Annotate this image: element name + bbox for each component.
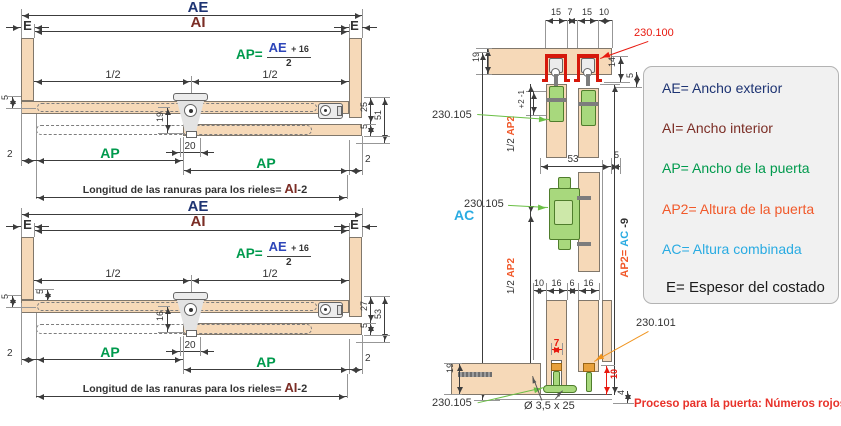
formula-denominator: 2 xyxy=(286,58,292,69)
ext-line xyxy=(180,138,181,157)
dim-7-red-line xyxy=(551,349,562,350)
ext-line xyxy=(158,107,170,108)
formula-ae: AE xyxy=(269,40,287,55)
legend-label: Ancho exterior xyxy=(692,80,782,96)
ext-line xyxy=(362,335,363,374)
slot-length-dim-line xyxy=(36,396,347,397)
rail-channel-foot xyxy=(565,79,570,82)
e-arrow-stub xyxy=(362,27,377,28)
ap-dim-line-right xyxy=(183,170,349,171)
rail-channel-foot xyxy=(542,79,547,82)
plan-view-1: AE E E AI AP= AE + 16 2 1/2 1/2 5 2 19 xyxy=(0,0,430,199)
hanger-screw xyxy=(546,98,566,102)
ext-line xyxy=(6,96,21,97)
ap2-formula-lhs: AP2= xyxy=(619,250,631,278)
half-dim-line xyxy=(34,81,191,82)
half-dim-label: 1/2 xyxy=(98,268,128,280)
ext-line xyxy=(362,136,363,175)
legend-label: Altura combinada xyxy=(693,241,802,257)
ext-line xyxy=(349,223,350,237)
ext-line xyxy=(600,84,620,85)
legend-item-e: E= Espesor del costado xyxy=(666,279,825,297)
dim-5-line xyxy=(611,166,620,167)
ac-dim-line xyxy=(482,52,483,400)
guide-anchor-front xyxy=(551,363,562,371)
ext-line xyxy=(349,24,350,38)
half-ap2-label: 1/2 AP2 xyxy=(507,258,517,294)
dim-20-stub xyxy=(200,351,214,352)
ext-line xyxy=(36,313,37,398)
door-width-formula: AP= AE + 16 2 xyxy=(236,239,311,268)
ext-line xyxy=(601,365,615,366)
ap-dim-line-left xyxy=(36,160,183,161)
dim-line xyxy=(545,20,567,21)
dim-right-total-label: 51 xyxy=(374,110,383,120)
tolerance-label: +2 -1 xyxy=(518,90,526,108)
ai-width-label: AI xyxy=(180,15,216,32)
ext-line xyxy=(562,343,563,355)
legend-item-ai: AI= Ancho interior xyxy=(662,119,773,137)
slot-length-suffix: -2 xyxy=(297,383,307,395)
floor-line xyxy=(541,394,612,395)
legend-code: AE= xyxy=(662,80,689,96)
legend-label: Altura de la puerta xyxy=(700,201,814,217)
bracket-tab xyxy=(186,131,197,138)
dim-53-label: 53 xyxy=(558,154,588,165)
ext-line xyxy=(364,97,390,98)
part-number-guide: 230.105 xyxy=(432,397,472,409)
ext-line xyxy=(356,143,390,144)
dim-right-total-label: 53 xyxy=(374,309,383,319)
rail-channel-wall xyxy=(545,54,548,82)
formula-fraction: AE + 16 2 xyxy=(267,40,311,69)
bracket-screw-center xyxy=(189,308,193,312)
roller-mount xyxy=(337,305,342,315)
ext-line xyxy=(613,403,634,404)
bracket-tab xyxy=(186,330,197,337)
guide-anchor-back xyxy=(583,363,595,372)
dim-20-stub xyxy=(166,351,180,352)
dim-2-label: 2 xyxy=(7,149,13,160)
tolerance-dim-line xyxy=(533,91,534,115)
ai-dim-line xyxy=(34,230,349,231)
side-panel-left xyxy=(21,237,34,300)
ext-line xyxy=(183,137,184,175)
ext-line xyxy=(183,336,184,374)
formula-denominator: 2 xyxy=(286,257,292,268)
ext-line xyxy=(356,342,390,343)
dim-2-label-right: 2 xyxy=(365,353,371,364)
dim-2-line xyxy=(21,359,36,360)
technical-drawing-page: { "colors":{"navy":"#1e3473","blue":"#2d… xyxy=(0,0,841,426)
ext-line xyxy=(362,9,363,38)
part-number-guide: 230.105 xyxy=(464,198,504,210)
dim-right-a-line xyxy=(370,296,371,323)
ai-dim-line xyxy=(34,31,349,32)
ext-line xyxy=(476,48,492,49)
half-ap2-label: 1/2 AP2 xyxy=(507,116,517,152)
dim-19-bottom-label: 19 xyxy=(446,363,455,373)
dim-2-line-right xyxy=(349,170,363,171)
ext-line xyxy=(364,136,390,137)
ap2-formula-label: AP2= AC -9 xyxy=(620,218,631,278)
dim-53-line xyxy=(540,166,611,167)
door-hanger-fitting xyxy=(549,86,564,122)
ext-line xyxy=(347,374,348,398)
part-number-rail: 230.100 xyxy=(634,27,674,39)
ext-line xyxy=(540,158,541,174)
dim-4-line xyxy=(627,391,628,403)
e-arrow-stub xyxy=(6,27,21,28)
dim-center-v-line xyxy=(167,107,168,133)
dim-20-stub xyxy=(166,152,180,153)
ai-width-label: AI xyxy=(180,214,216,231)
e-arrow-stub xyxy=(6,226,21,227)
dim-14-label: 14 xyxy=(608,57,617,67)
roller-mount xyxy=(337,106,342,116)
ext-line xyxy=(364,323,376,324)
half-dim-line xyxy=(34,280,191,281)
ext-line xyxy=(567,283,568,300)
dim-19-bottom-line xyxy=(459,363,460,395)
legend-code: AC= xyxy=(662,241,690,257)
guide-bracket-plate xyxy=(173,292,208,300)
e-arrow-stub xyxy=(362,226,377,227)
dim-2-line-right xyxy=(349,369,363,370)
ext-line xyxy=(474,52,490,53)
ap-dim-line-left xyxy=(36,359,183,360)
dim-right-b-line xyxy=(370,124,371,136)
legend-code: E= xyxy=(666,279,685,296)
ext-line xyxy=(364,335,390,336)
legend-item-ae: AE= Ancho exterior xyxy=(662,79,782,97)
slot-length-note: Longitud de las ranuras para los rieles=… xyxy=(55,381,335,396)
ext-line xyxy=(6,295,21,296)
formula-lhs: AP= xyxy=(236,246,263,261)
door-process-note: Proceso para la puerta: Números rojos xyxy=(634,398,841,411)
ext-line xyxy=(35,289,54,290)
bracket-screw-center xyxy=(189,109,193,113)
legend-code: AP= xyxy=(662,160,689,176)
legend-label: Ancho de la puerta xyxy=(692,160,810,176)
dim-5-line xyxy=(636,72,637,87)
dim-2-line xyxy=(21,160,36,161)
ext-line xyxy=(620,158,621,174)
half-text: 1/2 xyxy=(506,280,517,294)
panel-screw xyxy=(458,372,492,377)
hanger-bolt xyxy=(554,74,558,86)
ext-line xyxy=(364,124,376,125)
dim-right-a-line xyxy=(370,97,371,124)
ext-line xyxy=(476,74,492,75)
half-dim-label: 1/2 xyxy=(98,69,128,81)
dim-10-red-label: 10 xyxy=(610,369,619,379)
ext-line xyxy=(34,24,35,38)
hanger-bolt xyxy=(586,74,590,86)
door-hanger-fitting xyxy=(581,90,596,126)
dim-line xyxy=(598,20,612,21)
ap2-text: AP2 xyxy=(506,258,517,277)
dim-2-label-right: 2 xyxy=(365,154,371,165)
dim-10-red-line xyxy=(606,365,607,395)
formula-fraction: AE + 16 2 xyxy=(267,239,311,268)
ext-line xyxy=(599,283,600,300)
hanger-screw xyxy=(578,102,598,106)
ext-line xyxy=(364,296,390,297)
formula-ae: AE xyxy=(269,239,287,254)
ext-line xyxy=(158,133,185,134)
slot-length-code: AI xyxy=(284,380,297,395)
roller-axle xyxy=(324,109,327,112)
formula-lhs: AP= xyxy=(236,47,263,62)
slot-length-code: AI xyxy=(284,181,297,196)
dim-14-line xyxy=(620,56,621,82)
formula-plus: + 16 xyxy=(291,44,309,54)
ext-line xyxy=(200,337,201,356)
ext-line xyxy=(444,394,462,395)
ext-line xyxy=(546,283,547,300)
dim-line xyxy=(578,290,599,291)
ext-line xyxy=(21,303,22,365)
legend-item-ap: AP= Ancho de la puerta xyxy=(662,159,810,177)
connector-adjuster xyxy=(554,200,573,225)
ext-line xyxy=(158,332,185,333)
legend-code: AI= xyxy=(662,120,683,136)
dim-right-b-line xyxy=(370,323,371,335)
legend-code: AP2= xyxy=(662,201,697,217)
rail-groove-dashed xyxy=(37,103,317,112)
dim-10-label: 10 xyxy=(596,8,612,18)
ext-line xyxy=(578,283,579,300)
ap-dim-line-right xyxy=(183,369,349,370)
plan-view-2: AE E E AI AP= AE + 16 2 1/2 1/2 5 5 2 1 xyxy=(0,199,430,398)
ext-line xyxy=(612,56,628,57)
guide-bracket-plate xyxy=(173,93,208,101)
ext-line xyxy=(347,175,348,199)
guide-pin-back xyxy=(586,372,592,392)
dim-15-label: 15 xyxy=(576,8,598,18)
half-dim-line xyxy=(191,81,349,82)
ap2-formula-ac: AC xyxy=(619,231,631,247)
door-middle-segment xyxy=(578,172,600,272)
ap2-formula-rest: -9 xyxy=(619,218,631,231)
formula-plus: + 16 xyxy=(291,243,309,253)
legend-item-ap2: AP2= Altura de la puerta xyxy=(662,200,814,218)
ext-line xyxy=(180,337,181,356)
dim-line xyxy=(546,290,567,291)
dim-center-v-line xyxy=(167,306,168,332)
slot-length-text: Longitud de las ranuras para los rieles= xyxy=(83,184,282,196)
legend-item-ac: AC= Altura combinada xyxy=(662,240,802,258)
rail-groove-dashed xyxy=(37,302,317,311)
ext-line xyxy=(611,158,612,174)
connector-screw xyxy=(577,196,591,200)
ap2-text: AP2 xyxy=(506,116,517,135)
ext-line xyxy=(158,306,170,307)
legend-label: Ancho interior xyxy=(687,120,773,136)
ext-line xyxy=(362,208,363,237)
slot-length-suffix: -2 xyxy=(297,184,307,196)
slot-length-note: Longitud de las ranuras para los rieles=… xyxy=(55,182,335,197)
rail-channel-foot xyxy=(574,79,579,82)
ext-line xyxy=(34,223,35,237)
ext-line xyxy=(612,20,613,48)
ext-line xyxy=(21,104,22,166)
legend-label: Espesor del costado xyxy=(689,279,825,296)
ext-line xyxy=(614,87,642,88)
side-panel-left xyxy=(21,38,34,101)
part-number-guide: 230.105 xyxy=(432,109,472,121)
half-dim-label: 1/2 xyxy=(255,268,285,280)
ext-line xyxy=(200,138,201,157)
part-number-bottom-guide: 230.101 xyxy=(636,317,676,329)
half-dim-line xyxy=(191,280,349,281)
rail-channel-wall xyxy=(577,54,580,82)
slot-length-text: Longitud de las ranuras para los rieles= xyxy=(83,383,282,395)
half-dim-label: 1/2 xyxy=(255,69,285,81)
rail-channel-wall xyxy=(564,54,567,82)
rail-channel-foot xyxy=(597,79,602,82)
ext-line xyxy=(602,160,603,300)
half-text: 1/2 xyxy=(506,138,517,152)
half-ap2-dim-line xyxy=(530,84,531,214)
ext-line xyxy=(444,363,462,364)
roller-axle xyxy=(324,308,327,311)
screw-spec-label: Ø 3,5 x 25 xyxy=(524,400,575,412)
dim-7-label: 7 xyxy=(563,8,577,18)
legend-box: AE= Ancho exterior AI= Ancho interior AP… xyxy=(643,66,839,304)
dim-20-stub xyxy=(200,152,214,153)
ac-height-label: AC xyxy=(454,208,474,223)
ext-line xyxy=(551,343,552,355)
door-width-formula: AP= AE + 16 2 xyxy=(236,40,311,69)
connector-screw xyxy=(577,242,591,246)
ext-line xyxy=(36,114,37,199)
ext-line xyxy=(533,283,534,360)
dim-line xyxy=(577,20,598,21)
dim-2-label: 2 xyxy=(7,348,13,359)
